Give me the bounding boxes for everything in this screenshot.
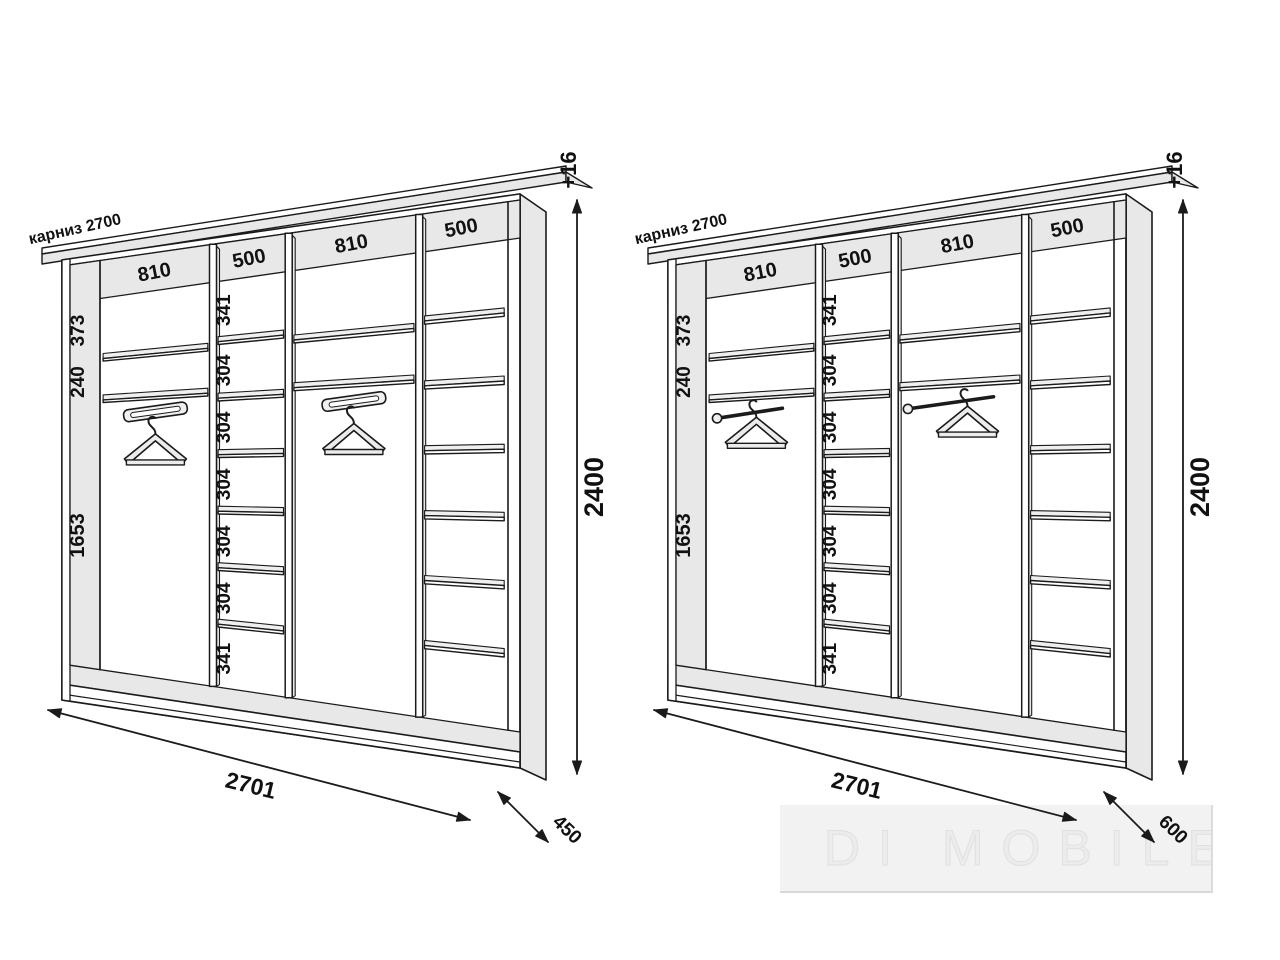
shelf bbox=[425, 449, 505, 454]
shelf-height-label: 304 bbox=[214, 354, 235, 386]
wardrobe-diagrams: карниз 270034130430430430430434181050081… bbox=[0, 0, 1280, 960]
rod-knob bbox=[903, 404, 912, 413]
panel-height-label: 373 bbox=[674, 315, 695, 347]
panel-height-label: 240 bbox=[674, 366, 695, 398]
shelf bbox=[824, 511, 889, 515]
hanger-bar bbox=[325, 450, 383, 455]
diagram-page: DI MOBILE карниз 27003413043043043043043… bbox=[0, 0, 1280, 960]
rod-knob bbox=[712, 414, 721, 423]
shelf-height-label: 304 bbox=[820, 411, 841, 443]
shelf-height-label: 304 bbox=[214, 468, 235, 500]
arrowhead bbox=[456, 812, 470, 821]
divider-panel bbox=[285, 233, 292, 697]
panel-height-label: 240 bbox=[68, 366, 89, 398]
shelf-height-label: 304 bbox=[820, 525, 841, 557]
panel-height-label: 1653 bbox=[673, 513, 695, 558]
shelf-height-label: 341 bbox=[820, 294, 841, 326]
height-extra-label: +16 bbox=[556, 151, 581, 188]
wardrobe-depth-450: карниз 270034130430430430430434181050081… bbox=[27, 151, 609, 848]
hanger-bar bbox=[939, 432, 997, 437]
divider-panel bbox=[891, 233, 898, 697]
arrowhead bbox=[654, 709, 668, 718]
height-dimension-label: 2400 bbox=[1185, 457, 1215, 517]
width-dimension-label: 2701 bbox=[223, 767, 279, 804]
side-panel bbox=[1126, 194, 1152, 780]
hanger-bar bbox=[126, 460, 184, 465]
shelf-height-label: 341 bbox=[214, 294, 235, 326]
wardrobe-depth-600: карниз 270034130430430430430434181050081… bbox=[633, 151, 1215, 848]
shelf-height-label: 304 bbox=[214, 525, 235, 557]
height-dimension-label: 2400 bbox=[579, 457, 609, 517]
shelf-height-label: 304 bbox=[820, 354, 841, 386]
shelf-height-label: 304 bbox=[820, 468, 841, 500]
panel-height-label: 1653 bbox=[67, 513, 89, 558]
shelf bbox=[218, 453, 283, 457]
arrowhead bbox=[1062, 812, 1076, 821]
shelf bbox=[824, 453, 889, 457]
shelf-height-label: 341 bbox=[820, 642, 841, 674]
hanger-bar bbox=[727, 443, 785, 448]
width-dimension-label: 2701 bbox=[829, 767, 885, 804]
side-panel bbox=[520, 194, 546, 780]
arrowhead bbox=[48, 709, 62, 718]
divider-panel bbox=[1022, 215, 1029, 718]
shelf-height-label: 341 bbox=[214, 642, 235, 674]
shelf-height-label: 304 bbox=[214, 582, 235, 614]
shelf bbox=[1031, 449, 1111, 454]
divider-panel bbox=[416, 215, 423, 718]
shelf-height-label: 304 bbox=[214, 411, 235, 443]
arrowhead bbox=[1178, 200, 1187, 213]
arrowhead bbox=[1178, 761, 1187, 774]
arrowhead bbox=[572, 200, 581, 213]
panel-height-label: 373 bbox=[68, 315, 89, 347]
shelf bbox=[218, 511, 283, 515]
arrowhead bbox=[572, 761, 581, 774]
depth-dimension-label: 450 bbox=[548, 811, 585, 848]
depth-dimension-label: 600 bbox=[1154, 811, 1191, 848]
shelf-height-label: 304 bbox=[820, 582, 841, 614]
height-extra-label: +16 bbox=[1162, 151, 1187, 188]
